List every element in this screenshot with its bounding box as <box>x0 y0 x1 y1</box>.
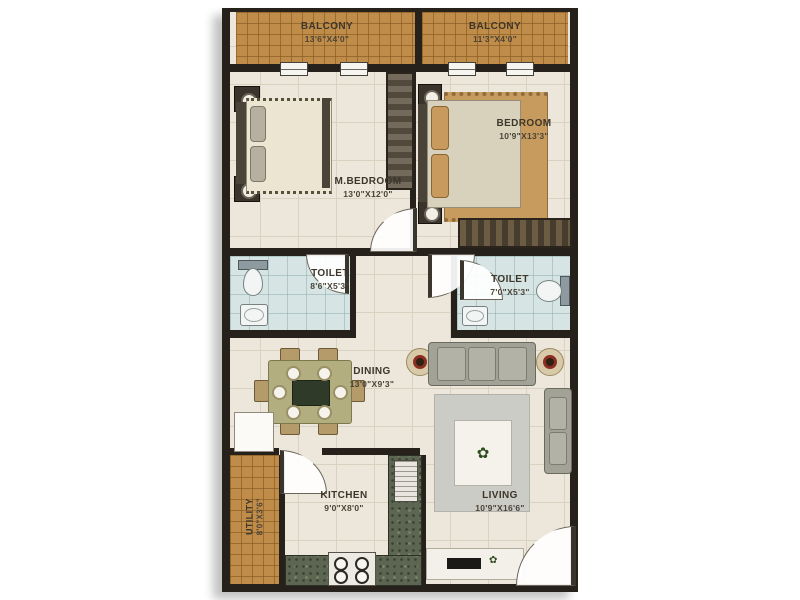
sofa-cushions <box>437 347 527 381</box>
room-name: UTILITY <box>244 467 255 567</box>
room-label-dining: DINING 13'0"X9'3" <box>322 366 422 389</box>
bed-headboard-icon <box>418 104 427 202</box>
wardrobe-icon <box>386 72 414 190</box>
kitchen-sink-icon <box>394 460 418 502</box>
pillow-icon <box>431 154 449 198</box>
washbasin-icon <box>462 306 488 326</box>
plate-icon <box>286 405 301 420</box>
table-plant-icon: ✿ <box>477 444 490 462</box>
sofa-two-seat-icon <box>544 388 572 474</box>
room-label-utility: UTILITY 8'0"X3'6" <box>244 467 265 567</box>
burner-icon <box>355 570 369 584</box>
room-label-m-bedroom: M.BEDROOM 13'0"X12'0" <box>318 176 418 199</box>
room-name: LIVING <box>450 490 550 503</box>
room-name: BALCONY <box>440 21 550 34</box>
room-label-kitchen: KITCHEN 9'0"X8'0" <box>294 490 394 513</box>
wall-segment <box>570 8 578 592</box>
room-label-toilet-right: TOILET 7'0"X5'3" <box>460 274 560 297</box>
room-label-balcony-right: BALCONY 11'3"X4'0" <box>440 21 550 44</box>
tv-icon <box>447 558 481 569</box>
burner-icon <box>334 557 348 571</box>
sofa-three-seat-icon <box>428 342 536 386</box>
wall-segment <box>415 8 422 72</box>
balcony-window-icon <box>506 62 534 76</box>
pillow-icon <box>431 106 449 150</box>
room-label-toilet-left: TOILET 8'6"X5'3" <box>280 268 380 291</box>
door-arc-master-bedroom <box>370 208 417 252</box>
wash-counter-icon <box>234 412 274 452</box>
room-dims: 13'6"X4'0" <box>272 34 382 45</box>
door-arc-main-entrance <box>516 526 576 586</box>
room-name: TOILET <box>460 274 560 287</box>
dining-chair-icon <box>254 380 269 402</box>
plate-icon <box>286 366 301 381</box>
room-label-balcony-left: BALCONY 13'6"X4'0" <box>272 21 382 44</box>
balcony-window-icon <box>448 62 476 76</box>
lamp-icon <box>424 206 440 222</box>
room-name: BALCONY <box>272 21 382 34</box>
bed-footboard-icon <box>322 98 330 188</box>
room-dims: 8'0"X3'6" <box>256 467 266 567</box>
washbasin-icon <box>240 304 268 326</box>
burner-icon <box>334 570 348 584</box>
planter-icon <box>536 348 564 376</box>
room-name: TOILET <box>280 268 380 281</box>
room-name: DINING <box>322 366 422 379</box>
plate-icon <box>317 405 332 420</box>
wall-segment <box>222 8 230 592</box>
wall-segment <box>230 330 356 338</box>
balcony-window-icon <box>340 62 368 76</box>
room-dims: 7'0"X5'3" <box>460 287 560 298</box>
balcony-window-icon <box>280 62 308 76</box>
floor-plan: ✿ ✿ BALCONY 13'6"X4'0" BALCONY 1 <box>222 8 578 592</box>
coffee-table-icon: ✿ <box>454 420 512 486</box>
stove-icon <box>328 552 376 586</box>
room-name: M.BEDROOM <box>318 176 418 189</box>
wardrobe-icon <box>458 218 572 248</box>
plate-icon <box>272 385 287 400</box>
room-name: KITCHEN <box>294 490 394 503</box>
sofa-cushions <box>549 397 567 465</box>
room-dims: 13'0"X9'3" <box>322 379 422 390</box>
room-name: BEDROOM <box>474 118 574 131</box>
room-dims: 9'0"X8'0" <box>294 503 394 514</box>
pillow-icon <box>250 106 266 142</box>
burner-icon <box>355 557 369 571</box>
room-dims: 10'9"X13'3" <box>474 131 574 142</box>
room-label-living: LIVING 10'9"X16'6" <box>450 490 550 513</box>
tv-console-icon: ✿ <box>426 548 524 580</box>
room-dims: 10'9"X16'6" <box>450 503 550 514</box>
bed-headboard-icon <box>236 102 246 184</box>
wall-segment <box>222 8 578 12</box>
door-arc-utility <box>280 450 327 494</box>
room-label-bedroom: BEDROOM 10'9"X13'3" <box>474 118 574 141</box>
pillow-icon <box>250 146 266 182</box>
wall-segment <box>451 330 570 338</box>
floor-plan-canvas: ✿ ✿ BALCONY 13'6"X4'0" BALCONY 1 <box>0 0 800 600</box>
wall-segment <box>322 448 420 455</box>
toilet-bowl-icon <box>243 268 263 296</box>
room-dims: 11'3"X4'0" <box>440 34 550 45</box>
room-dims: 13'0"X12'0" <box>318 189 418 200</box>
decor-plant-icon: ✿ <box>489 555 497 566</box>
room-dims: 8'6"X5'3" <box>280 281 380 292</box>
